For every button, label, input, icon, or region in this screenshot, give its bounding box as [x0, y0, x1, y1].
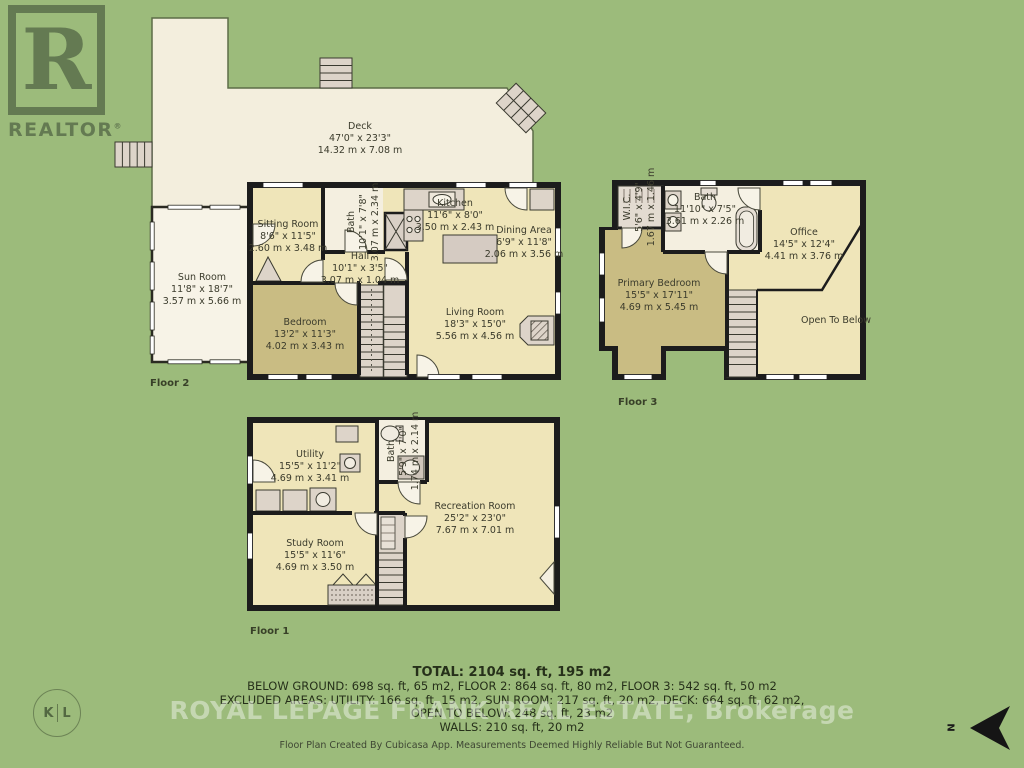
floor2-bath-label: Bath10'1" x 7'8"3.07 m x 2.34 m — [346, 183, 382, 262]
utility-label: Utility15'5" x 11'2"4.69 m x 3.41 m — [271, 449, 350, 485]
wic-label: W.I.C.5'6" x 4'9"1.67 m x 1.46 m — [622, 168, 658, 247]
kitchen-label: Kitchen11'6" x 8'0"3.50 m x 2.43 m — [416, 198, 495, 234]
recreation-room-label: Recreation Room25'2" x 23'0"7.67 m x 7.0… — [435, 501, 516, 537]
floor3-label: Floor 3 — [618, 397, 657, 408]
kl-badge-divider — [57, 704, 58, 722]
kl-badge-k: K — [43, 706, 53, 721]
study-room-label: Study Room15'5" x 11'6"4.69 m x 3.50 m — [276, 538, 355, 574]
sitting-room-label: Sitting Room8'6" x 11'5"2.60 m x 3.48 m — [249, 219, 328, 255]
hall-label: Hall10'1" x 3'5"3.07 m x 1.04 m — [321, 251, 400, 287]
realtor-logo-text: REALTOR® — [8, 119, 123, 141]
realtor-r-glyph: R — [22, 20, 92, 100]
deck-side-stairs-icon — [115, 142, 152, 167]
floor2-stairs-icon — [360, 285, 407, 377]
open-to-below-label: Open To Below — [801, 315, 871, 327]
primary-bedroom-label: Primary Bedroom15'5" x 17'11"4.69 m x 5.… — [618, 278, 701, 314]
cubicasa-disclaimer: Floor Plan Created By Cubicasa App. Meas… — [0, 740, 1024, 751]
total-area-text: TOTAL: 2104 sq. ft, 195 m2 — [0, 666, 1024, 680]
floor3-stairs-icon — [727, 290, 757, 377]
deck-stairs-icon — [320, 58, 352, 88]
office-label: Office14'5" x 12'4"4.41 m x 3.76 m — [765, 227, 844, 263]
deck-shape — [152, 18, 533, 207]
realtor-logo-watermark: R REALTOR® — [8, 5, 123, 141]
bedroom-label: Bedroom13'2" x 11'3"4.02 m x 3.43 m — [266, 317, 345, 353]
floor-areas-text: BELOW GROUND: 698 sq. ft, 65 m2, FLOOR 2… — [0, 680, 1024, 694]
kl-badge-l: L — [62, 706, 70, 721]
realtor-logo-box: R — [8, 5, 105, 115]
dining-area-label: Dining Area6'9" x 11'8"2.06 m x 3.56 m — [485, 225, 564, 261]
kl-logo-badge: K L — [33, 689, 81, 737]
floor1-label: Floor 1 — [250, 626, 289, 637]
registered-mark-icon: ® — [114, 122, 124, 131]
living-room-label: Living Room18'3" x 15'0"5.56 m x 4.56 m — [436, 307, 515, 343]
floor2-label: Floor 2 — [150, 378, 189, 389]
fireplace-icon — [520, 316, 554, 345]
brokerage-watermark: ROYAL LEPAGE FRANK REAL ESTATE, Brokerag… — [0, 696, 1024, 725]
floor-plan-page: R REALTOR® Deck47'0" x 23'3"14.32 m x 7.… — [0, 0, 1024, 768]
deck-label: Deck47'0" x 23'3"14.32 m x 7.08 m — [318, 121, 403, 157]
floor1-stairs-icon — [377, 553, 405, 605]
floor3-bath-label: Bath11'10" x 7'5"3.61 m x 2.26 m — [666, 192, 745, 228]
floor1-closet-icon — [377, 513, 405, 553]
sun-room-label: Sun Room11'8" x 18'7"3.57 m x 5.66 m — [163, 272, 242, 308]
floor1-bath-label: Bath5'9" x 7'0"1.74 m x 2.14 m — [386, 412, 422, 491]
compass-north-label: N — [947, 723, 958, 731]
